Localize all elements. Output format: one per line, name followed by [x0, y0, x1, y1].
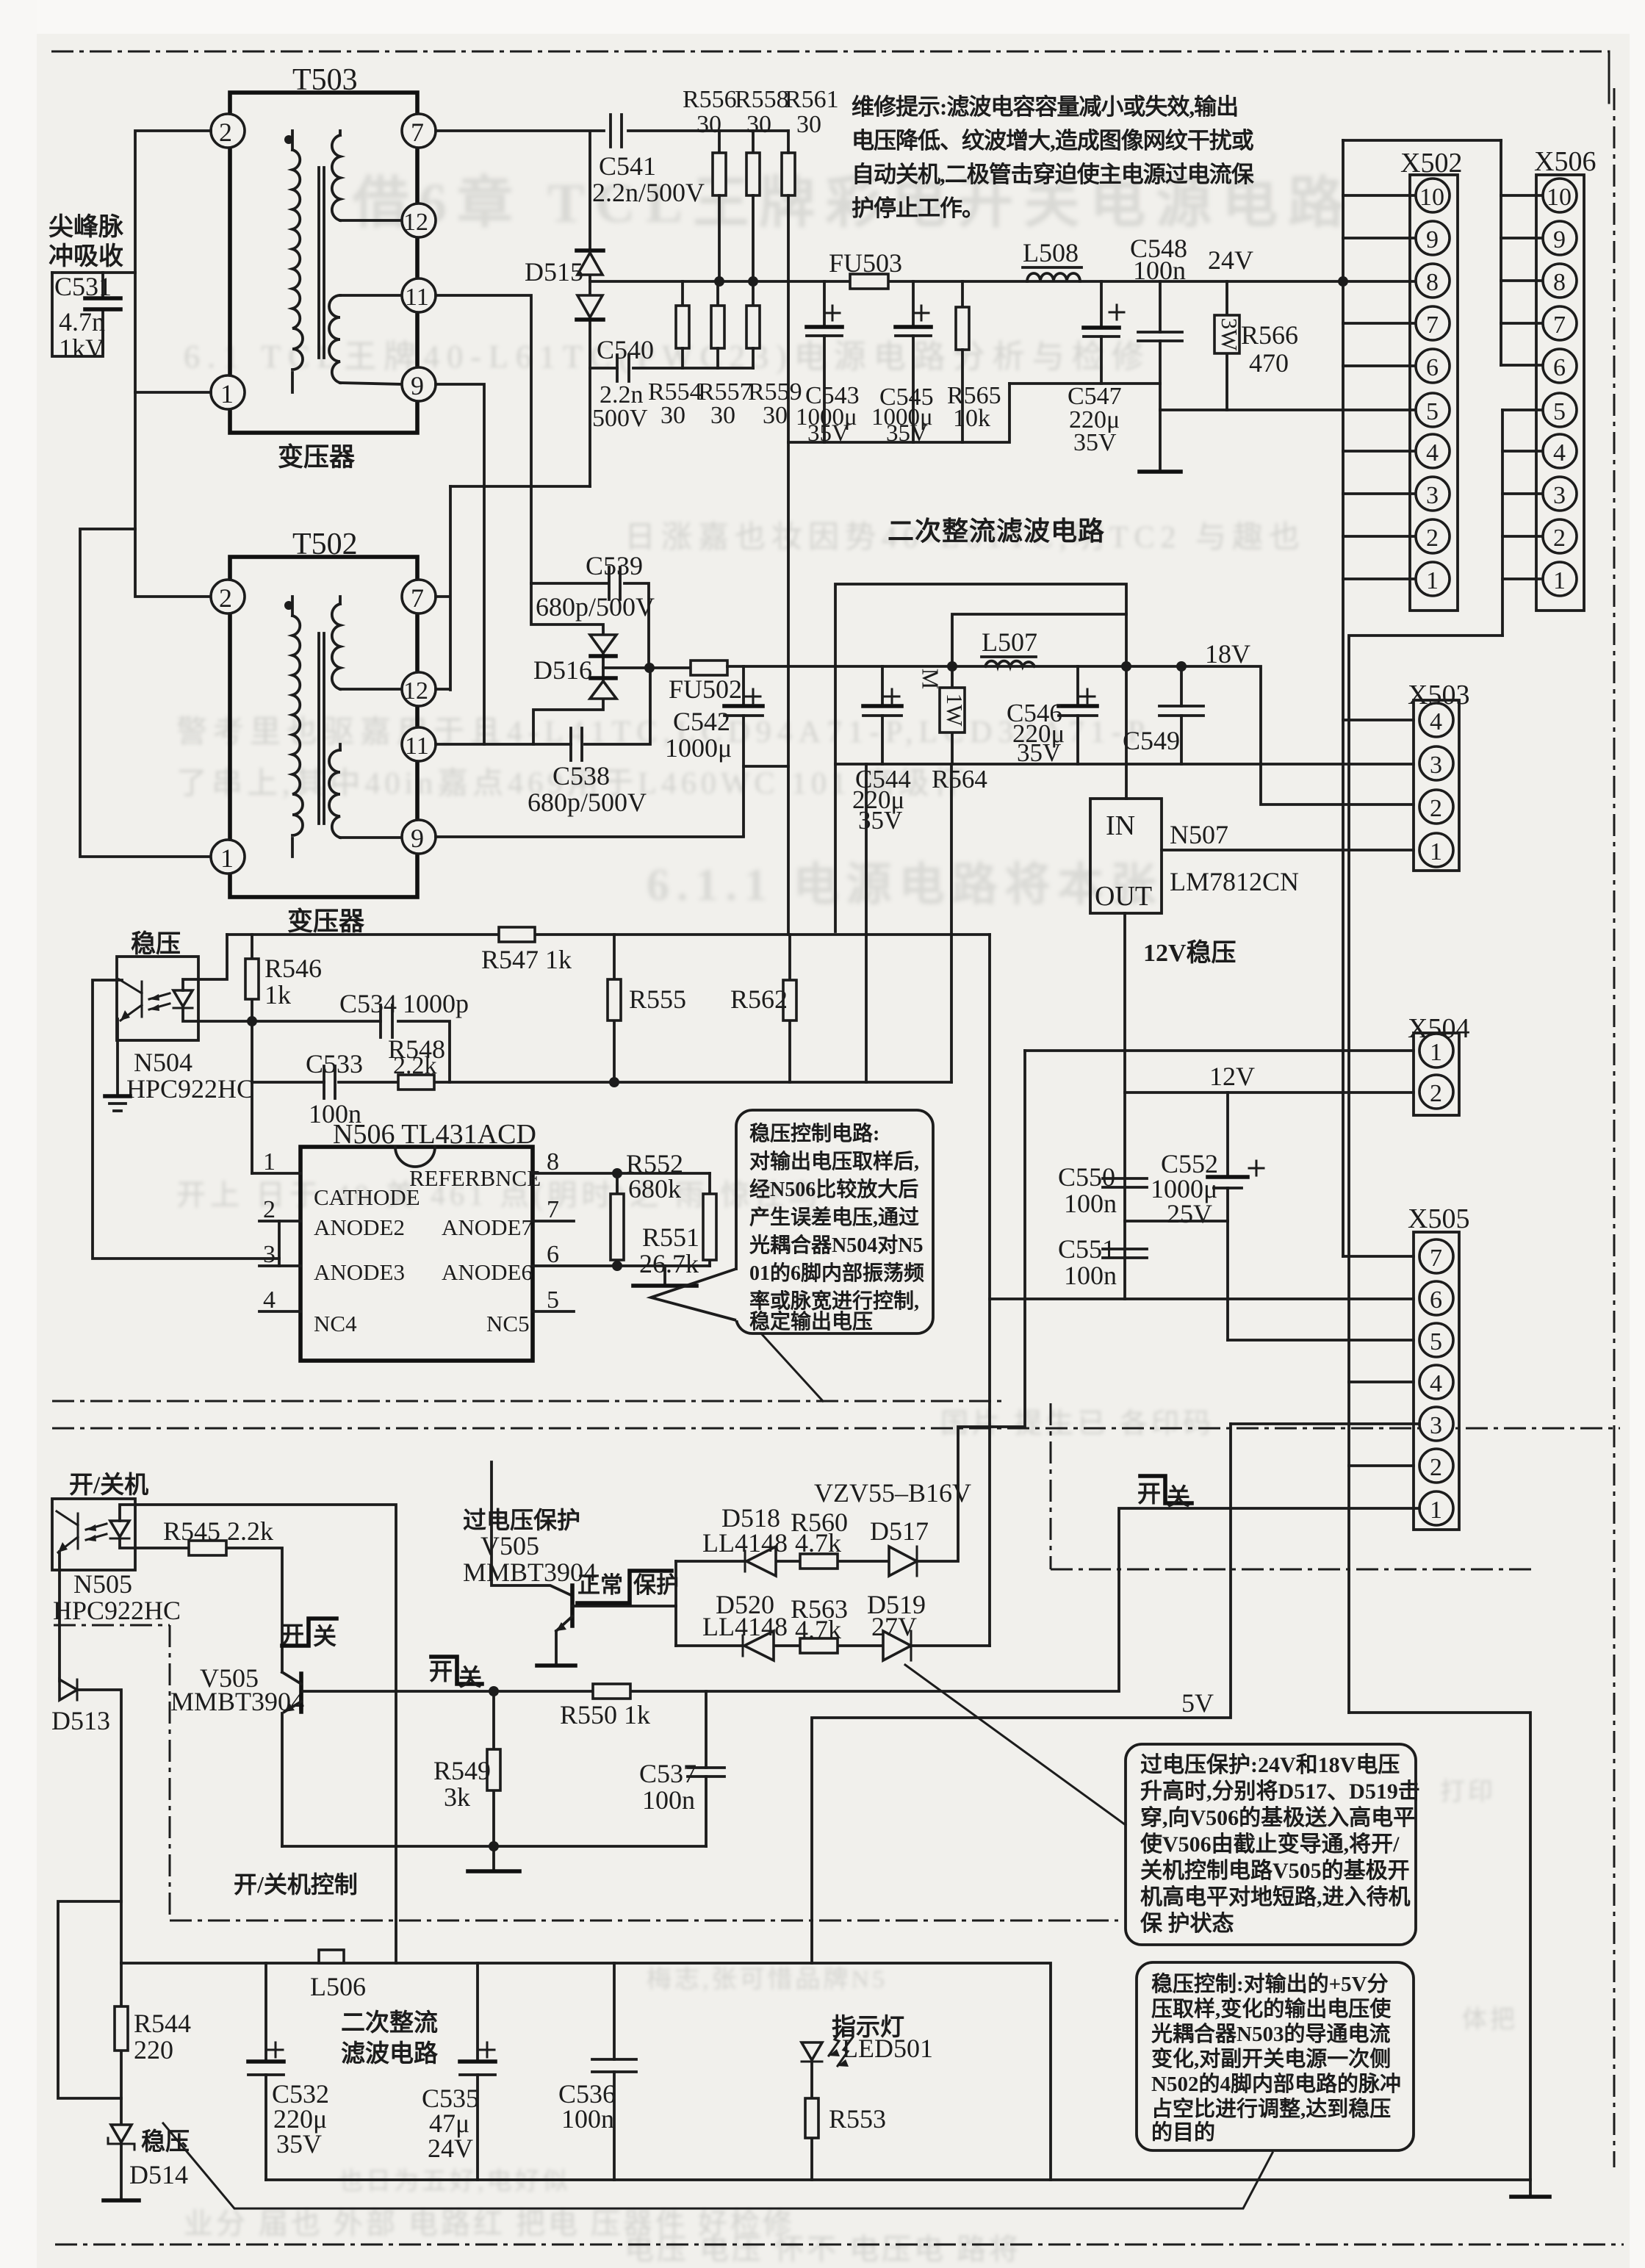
svg-text:电压 电压 怀不 电压电 路将: 电压 电压 怀不 电压电 路将 [624, 2233, 1021, 2266]
svg-text:24V: 24V [428, 2134, 473, 2163]
svg-text:L506: L506 [310, 1972, 366, 2001]
svg-text:ANODE2: ANODE2 [314, 1214, 405, 1240]
svg-text:2: 2 [1430, 1080, 1442, 1107]
svg-text:35V: 35V [1073, 429, 1117, 456]
svg-text:M: M [918, 669, 944, 689]
svg-text:关机控制电路V505的基极开: 关机控制电路V505的基极开 [1140, 1859, 1410, 1883]
svg-text:4: 4 [263, 1286, 276, 1314]
svg-text:680k: 680k [628, 1174, 681, 1203]
svg-text:1: 1 [1430, 1497, 1442, 1524]
svg-text:1: 1 [1553, 567, 1566, 594]
svg-text:12V稳压: 12V稳压 [1143, 939, 1237, 967]
svg-text:压取样,变化的输出电压使: 压取样,变化的输出电压使 [1151, 1996, 1392, 2021]
svg-text:IN: IN [1106, 810, 1135, 841]
svg-text:100n: 100n [561, 2104, 614, 2134]
svg-text:35V: 35V [858, 806, 902, 835]
svg-text:5: 5 [1430, 1328, 1442, 1356]
svg-text:打印: 打印 [1440, 1778, 1496, 1806]
svg-text:稳压控制电路:: 稳压控制电路: [749, 1122, 879, 1145]
svg-text:HPC922HC: HPC922HC [126, 1074, 254, 1104]
svg-text:8: 8 [547, 1148, 559, 1176]
svg-text:5: 5 [1553, 398, 1566, 425]
svg-text:国片 提生已 各印码: 国片 提生已 各印码 [940, 1408, 1214, 1439]
svg-text:对输出电压取样后,: 对输出电压取样后, [749, 1149, 919, 1173]
svg-text:4: 4 [1430, 708, 1442, 735]
svg-text:2.2k: 2.2k [393, 1052, 437, 1079]
svg-text:11: 11 [405, 284, 429, 311]
svg-text:C538: C538 [552, 761, 610, 791]
svg-text:2: 2 [1430, 795, 1442, 822]
svg-text:机高电平对地短路,进入待机: 机高电平对地短路,进入待机 [1140, 1885, 1411, 1909]
svg-text:7: 7 [547, 1196, 559, 1223]
svg-text:9: 9 [411, 824, 424, 853]
svg-text:3: 3 [1553, 482, 1566, 509]
svg-text:9: 9 [1426, 226, 1439, 253]
svg-text:25V: 25V [1167, 1199, 1212, 1228]
svg-text:ANODE7: ANODE7 [442, 1214, 533, 1240]
svg-text:R562: R562 [730, 984, 788, 1014]
svg-text:R553: R553 [829, 2104, 886, 2134]
svg-text:C537: C537 [639, 1759, 696, 1788]
svg-text:滤波电路: 滤波电路 [341, 2040, 439, 2067]
svg-text:HPC922HC: HPC922HC [53, 1596, 181, 1625]
svg-text:D514: D514 [129, 2160, 188, 2189]
svg-text:N505: N505 [73, 1569, 132, 1599]
svg-text:1: 1 [220, 379, 234, 408]
svg-text:正常: 正常 [577, 1572, 623, 1598]
svg-text:冲吸收: 冲吸收 [48, 242, 123, 270]
svg-text:C539: C539 [586, 551, 643, 580]
svg-text:LL4148: LL4148 [702, 1528, 788, 1558]
svg-text:9: 9 [411, 371, 424, 400]
svg-text:二次整流: 二次整流 [341, 2009, 438, 2037]
svg-text:D515: D515 [525, 257, 583, 287]
svg-text:6: 6 [1553, 354, 1566, 381]
svg-text:变压器: 变压器 [278, 443, 356, 472]
svg-text:220: 220 [134, 2035, 173, 2064]
svg-text:1W: 1W [942, 694, 968, 727]
svg-text:30: 30 [746, 111, 771, 138]
svg-text:6: 6 [547, 1241, 559, 1268]
svg-text:穿,向V506的基极送入高电平: 穿,向V506的基极送入高电平 [1140, 1805, 1415, 1830]
svg-text:L508: L508 [1023, 238, 1079, 267]
svg-text:C540: C540 [597, 335, 654, 364]
svg-text:L507: L507 [982, 627, 1037, 657]
svg-text:35V: 35V [1017, 738, 1061, 767]
svg-text:X505: X505 [1408, 1203, 1469, 1234]
svg-text:12V: 12V [1209, 1062, 1255, 1091]
svg-text:使V506由截止变导通,将开/: 使V506由截止变导通,将开/ [1140, 1832, 1400, 1857]
svg-text:4: 4 [1553, 439, 1566, 467]
svg-text:ANODE3: ANODE3 [314, 1259, 405, 1285]
svg-text:FU503: FU503 [829, 248, 902, 278]
svg-text:FU502: FU502 [669, 674, 742, 704]
svg-text:35V: 35V [807, 420, 849, 447]
svg-text:稳压: 稳压 [141, 2128, 190, 2156]
svg-text:关: 关 [458, 1664, 482, 1691]
svg-text:VZV55–B16V: VZV55–B16V [814, 1478, 971, 1508]
svg-text:1: 1 [1426, 567, 1439, 594]
svg-text:二次整流滤波电路: 二次整流滤波电路 [888, 516, 1105, 546]
svg-text:4: 4 [1430, 1370, 1442, 1397]
svg-text:REFERBNCE: REFERBNCE [409, 1165, 541, 1191]
svg-text:10: 10 [1419, 184, 1444, 211]
svg-text:过电压保护:24V和18V电压: 过电压保护:24V和18V电压 [1140, 1753, 1400, 1777]
svg-text:4: 4 [1426, 439, 1439, 467]
svg-text:1000p: 1000p [403, 989, 469, 1018]
svg-text:体把: 体把 [1462, 2006, 1518, 2034]
svg-text:30: 30 [696, 111, 721, 138]
svg-text:2: 2 [1430, 1454, 1442, 1481]
svg-text:3: 3 [263, 1241, 276, 1268]
svg-text:C533: C533 [306, 1049, 363, 1079]
svg-text:OUT: OUT [1095, 881, 1152, 912]
svg-text:电压降低、纹波增大,造成图像网纹干扰或: 电压降低、纹波增大,造成图像网纹干扰或 [852, 128, 1254, 154]
svg-text:2.2n/500V: 2.2n/500V [592, 178, 705, 207]
svg-text:30: 30 [796, 111, 821, 138]
svg-text:C542: C542 [673, 707, 730, 736]
svg-text:CATHODE: CATHODE [314, 1184, 420, 1210]
svg-text:12: 12 [403, 209, 428, 236]
svg-text:升高时,分别将D517、D519击: 升高时,分别将D517、D519击 [1140, 1779, 1420, 1804]
svg-text:开/关机: 开/关机 [69, 1472, 148, 1499]
svg-text:R551: R551 [642, 1223, 699, 1252]
svg-text:24V: 24V [1208, 245, 1253, 275]
svg-text:N502的4脚内部电路的脉冲: N502的4脚内部电路的脉冲 [1151, 2071, 1401, 2096]
svg-text:100n: 100n [1064, 1189, 1117, 1218]
svg-text:尖峰脉: 尖峰脉 [48, 213, 124, 241]
svg-text:35V: 35V [886, 420, 928, 447]
svg-text:3: 3 [1430, 1412, 1442, 1439]
svg-text:X506: X506 [1534, 146, 1596, 177]
svg-text:变压器: 变压器 [287, 907, 365, 936]
svg-text:3: 3 [1430, 752, 1442, 779]
svg-text:LED501: LED501 [842, 2034, 933, 2063]
svg-text:开: 开 [1137, 1480, 1161, 1507]
svg-text:D513: D513 [51, 1706, 110, 1735]
svg-text:R556: R556 [683, 86, 737, 113]
svg-text:6: 6 [1426, 354, 1439, 381]
svg-text:100n: 100n [642, 1785, 695, 1815]
svg-text:梅志,张可惜品牌N5: 梅志,张可惜品牌N5 [647, 1965, 888, 1993]
svg-text:3k: 3k [444, 1782, 470, 1812]
svg-text:警考里也驱嘉用于且4-L41TC,LCD94A71-P,LC: 警考里也驱嘉用于且4-L41TC,LCD94A71-P,LCD32A71-P [176, 716, 1151, 749]
svg-text:关: 关 [313, 1623, 336, 1649]
svg-text:关: 关 [1167, 1483, 1190, 1510]
svg-text:12: 12 [403, 677, 428, 705]
svg-text:6.1.1 电源电路将本张: 6.1.1 电源电路将本张 [647, 860, 1164, 910]
svg-text:1000μ: 1000μ [665, 733, 732, 763]
svg-text:N507: N507 [1170, 820, 1228, 849]
svg-text:C551: C551 [1058, 1234, 1115, 1264]
svg-text:的目的: 的目的 [1151, 2120, 1215, 2145]
svg-text:R564: R564 [932, 765, 987, 793]
svg-text:30: 30 [710, 402, 735, 429]
svg-text:光耦合器N503的导通电流: 光耦合器N503的导通电流 [1151, 2021, 1390, 2046]
svg-text:11: 11 [405, 732, 429, 760]
svg-text:开/关机控制: 开/关机控制 [234, 1871, 358, 1898]
svg-text:30: 30 [660, 402, 685, 429]
svg-text:27V: 27V [871, 1612, 917, 1641]
svg-text:稳定输出电压: 稳定输出电压 [749, 1309, 873, 1333]
svg-text:35V: 35V [276, 2129, 322, 2159]
svg-text:ANODE6: ANODE6 [442, 1259, 533, 1285]
svg-text:稳压: 稳压 [131, 930, 181, 958]
svg-text:C534: C534 [339, 989, 397, 1018]
svg-text:R545 2.2k: R545 2.2k [163, 1516, 273, 1546]
svg-text:7: 7 [411, 118, 424, 147]
svg-text:30: 30 [763, 402, 788, 429]
svg-text:R550 1k: R550 1k [560, 1700, 650, 1729]
svg-text:R555: R555 [629, 984, 686, 1014]
svg-text:C531: C531 [54, 272, 112, 301]
svg-text:26.7k: 26.7k [639, 1249, 699, 1278]
svg-text:1k: 1k [264, 980, 291, 1009]
svg-text:5V: 5V [1181, 1688, 1214, 1718]
svg-text:1: 1 [263, 1148, 276, 1176]
svg-text:保护: 保护 [633, 1572, 679, 1598]
svg-text:保 护状态: 保 护状态 [1140, 1912, 1234, 1936]
svg-text:D516: D516 [533, 655, 592, 685]
svg-text:经N506比较放大后: 经N506比较放大后 [749, 1177, 918, 1201]
svg-text:R561: R561 [785, 86, 839, 113]
svg-text:9: 9 [1553, 226, 1566, 253]
svg-text:R546: R546 [264, 954, 322, 983]
svg-text:R544: R544 [134, 2009, 191, 2038]
svg-text:R549: R549 [433, 1756, 491, 1785]
svg-text:自动关机,二极管击穿迫使主电源过电流保: 自动关机,二极管击穿迫使主电源过电流保 [852, 162, 1255, 187]
svg-text:4.7k: 4.7k [795, 1528, 841, 1558]
svg-text:4.7n: 4.7n [59, 307, 105, 336]
svg-text:01的6脚内部振荡频: 01的6脚内部振荡频 [749, 1261, 924, 1285]
svg-text:6: 6 [1430, 1286, 1442, 1314]
svg-text:护停止工作。: 护停止工作。 [852, 195, 984, 221]
svg-text:1kV: 1kV [59, 334, 104, 363]
svg-text:NC4: NC4 [314, 1311, 357, 1336]
svg-text:占空比进行调整,达到稳压: 占空比进行调整,达到稳压 [1151, 2096, 1391, 2121]
svg-text:2: 2 [219, 118, 232, 147]
svg-text:100n: 100n [1064, 1261, 1117, 1290]
svg-text:7: 7 [1430, 1245, 1442, 1272]
svg-text:也日为五好,电好似: 也日为五好,电好似 [338, 2167, 571, 2195]
svg-text:680p/500V: 680p/500V [536, 592, 655, 622]
svg-text:开: 开 [429, 1658, 453, 1685]
svg-text:680p/500V: 680p/500V [528, 788, 647, 817]
svg-text:2: 2 [219, 583, 232, 613]
svg-text:100n: 100n [1133, 256, 1186, 285]
svg-text:10: 10 [1547, 184, 1572, 211]
svg-text:1: 1 [1430, 838, 1442, 865]
svg-text:4.7k: 4.7k [795, 1615, 841, 1644]
svg-text:过电压保护: 过电压保护 [463, 1507, 580, 1533]
svg-text:7: 7 [1553, 312, 1566, 339]
svg-text:产生误差电压,通过: 产生误差电压,通过 [749, 1205, 919, 1229]
svg-text:维修提示:滤波电容容量减小或失效,输出: 维修提示:滤波电容容量减小或失效,输出 [852, 94, 1238, 120]
svg-text:3W: 3W [1217, 318, 1242, 352]
svg-text:1: 1 [220, 843, 234, 873]
svg-text:C550: C550 [1058, 1162, 1115, 1192]
svg-text:NC5: NC5 [486, 1311, 530, 1336]
svg-text:10k: 10k [953, 405, 990, 432]
svg-text:LM7812CN: LM7812CN [1170, 867, 1299, 896]
svg-text:N504: N504 [134, 1048, 192, 1077]
svg-text:稳压控制:对输出的+5V分: 稳压控制:对输出的+5V分 [1151, 1971, 1389, 1996]
svg-text:R558: R558 [735, 86, 789, 113]
svg-text:R566: R566 [1241, 320, 1298, 350]
svg-text:5: 5 [1426, 398, 1439, 425]
svg-text:变化,对副开关电源一次侧: 变化,对副开关电源一次侧 [1151, 2046, 1391, 2071]
svg-text:R547 1k: R547 1k [481, 945, 572, 974]
svg-text:2: 2 [263, 1196, 276, 1223]
svg-text:5: 5 [547, 1286, 559, 1314]
svg-text:8: 8 [1426, 269, 1439, 296]
svg-text:18V: 18V [1205, 639, 1250, 669]
svg-text:2: 2 [1426, 525, 1439, 552]
svg-text:1: 1 [1430, 1039, 1442, 1066]
svg-text:光耦合器N504对N5: 光耦合器N504对N5 [749, 1233, 923, 1257]
svg-text:MMBT3904: MMBT3904 [463, 1558, 597, 1587]
svg-text:D517: D517 [870, 1516, 929, 1546]
svg-text:3: 3 [1426, 482, 1439, 509]
svg-text:LL4148: LL4148 [702, 1612, 788, 1641]
svg-text:C549: C549 [1123, 726, 1180, 755]
svg-text:C541: C541 [599, 151, 656, 181]
svg-text:500V: 500V [592, 405, 648, 432]
svg-text:率或脉宽进行控制,: 率或脉宽进行控制, [749, 1289, 919, 1313]
svg-text:7: 7 [1426, 312, 1439, 339]
svg-text:2: 2 [1553, 525, 1566, 552]
svg-text:V505: V505 [480, 1531, 539, 1560]
svg-text:470: 470 [1249, 348, 1289, 378]
svg-text:7: 7 [411, 583, 424, 613]
svg-text:8: 8 [1553, 269, 1566, 296]
